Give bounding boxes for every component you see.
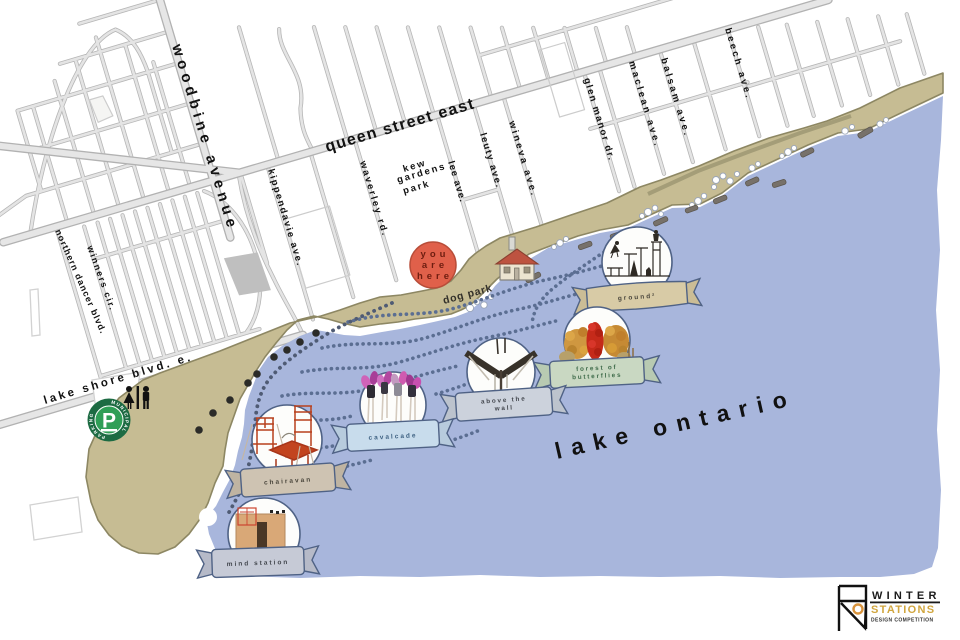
- svg-text:WINTER: WINTER: [872, 590, 941, 602]
- svg-text:here: here: [417, 271, 453, 282]
- svg-text:DESIGN COMPETITION: DESIGN COMPETITION: [871, 618, 933, 624]
- svg-text:wall: wall: [494, 404, 515, 412]
- svg-text:are: are: [422, 260, 448, 271]
- svg-text:you: you: [421, 249, 450, 260]
- svg-text:STATIONS: STATIONS: [871, 604, 935, 616]
